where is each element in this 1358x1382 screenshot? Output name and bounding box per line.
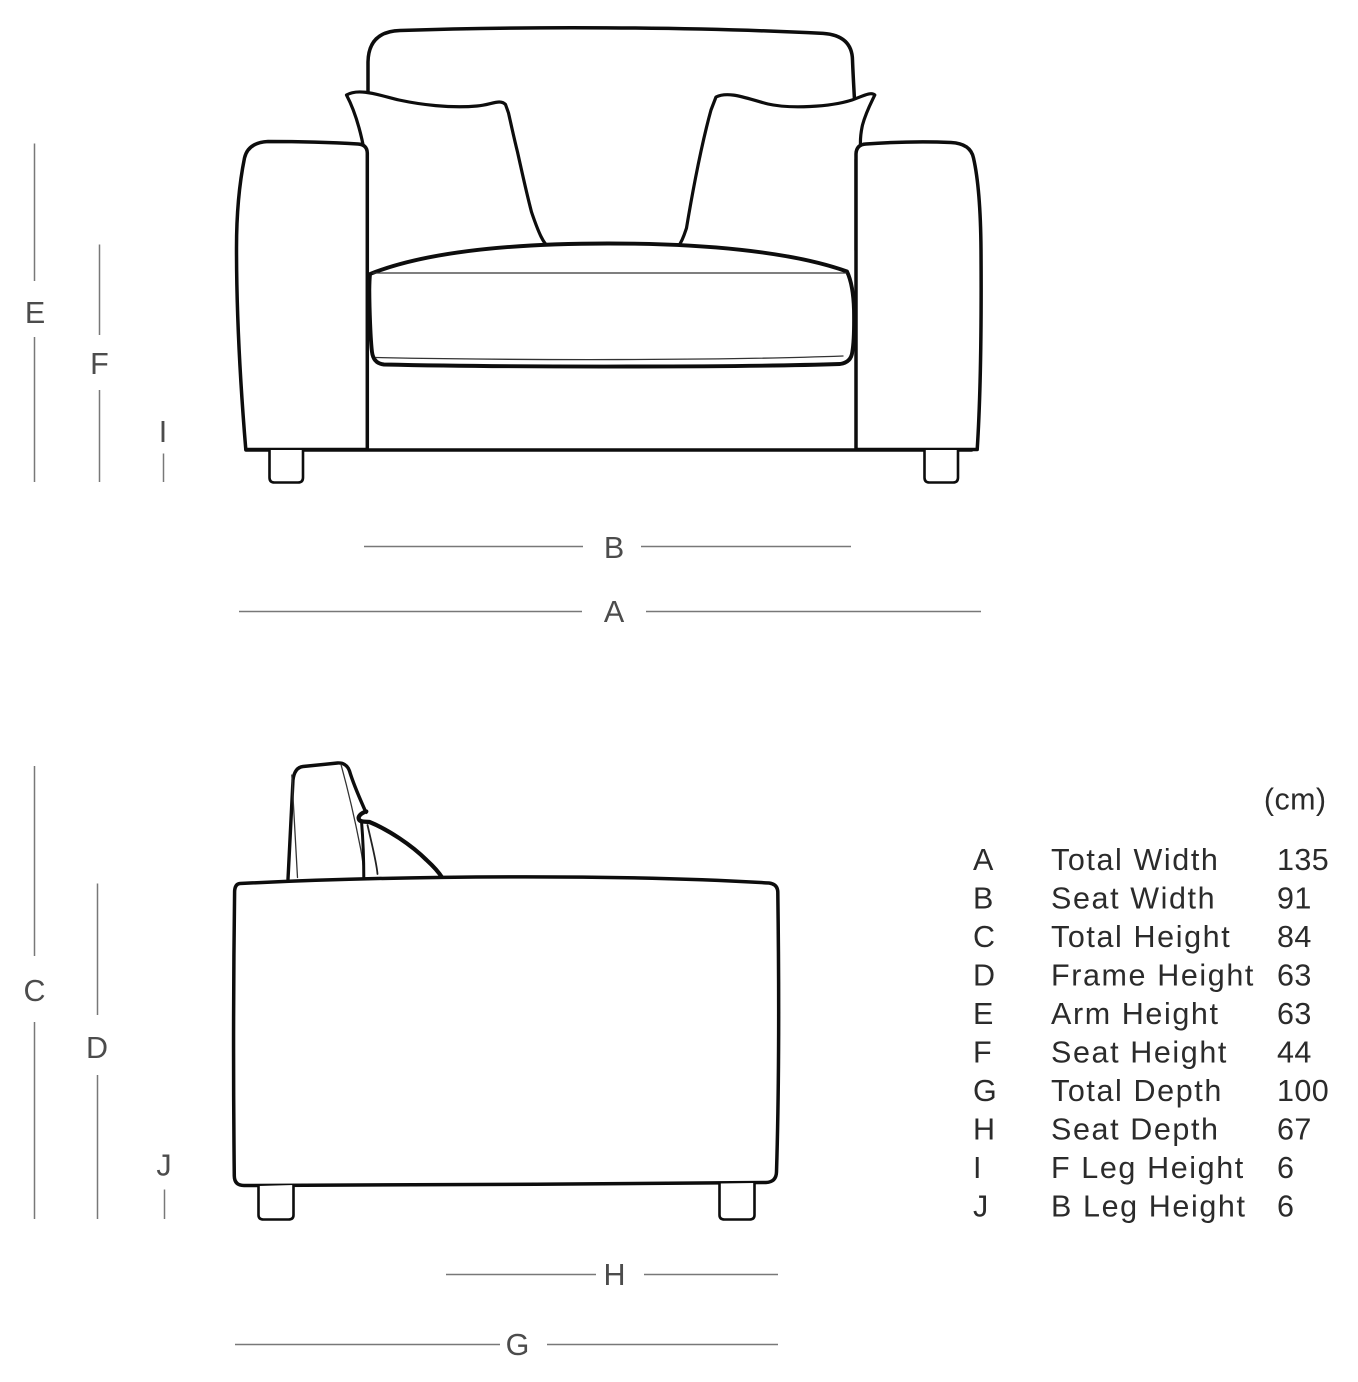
svg-text:63: 63 xyxy=(1277,997,1312,1031)
svg-text:135: 135 xyxy=(1277,843,1329,877)
svg-text:F: F xyxy=(973,1035,992,1069)
svg-text:Frame Height: Frame Height xyxy=(1051,958,1255,992)
svg-text:J: J xyxy=(973,1189,989,1223)
svg-text:D: D xyxy=(973,958,995,992)
svg-text:F Leg Height: F Leg Height xyxy=(1051,1151,1245,1185)
svg-text:6: 6 xyxy=(1277,1189,1294,1223)
svg-text:G: G xyxy=(973,1074,997,1108)
svg-text:J: J xyxy=(156,1148,171,1182)
svg-text:Seat Height: Seat Height xyxy=(1051,1035,1228,1069)
svg-text:B: B xyxy=(973,881,994,915)
svg-text:H: H xyxy=(973,1112,995,1146)
svg-text:C: C xyxy=(23,974,45,1008)
svg-text:B Leg Height: B Leg Height xyxy=(1051,1189,1247,1223)
svg-text:Seat Width: Seat Width xyxy=(1051,881,1216,915)
svg-text:84: 84 xyxy=(1277,920,1312,954)
svg-text:44: 44 xyxy=(1277,1035,1312,1069)
svg-text:G: G xyxy=(506,1328,530,1362)
svg-text:67: 67 xyxy=(1277,1112,1312,1146)
svg-text:E: E xyxy=(973,997,994,1031)
svg-text:Total Height: Total Height xyxy=(1051,920,1231,954)
svg-text:C: C xyxy=(973,920,995,954)
svg-text:Arm Height: Arm Height xyxy=(1051,997,1220,1031)
svg-text:B: B xyxy=(604,531,624,565)
svg-text:A: A xyxy=(604,595,625,629)
svg-text:Seat Depth: Seat Depth xyxy=(1051,1112,1220,1146)
svg-text:H: H xyxy=(603,1258,625,1292)
svg-text:I: I xyxy=(159,415,167,449)
svg-text:(cm): (cm) xyxy=(1264,783,1327,817)
svg-text:100: 100 xyxy=(1277,1074,1329,1108)
svg-text:I: I xyxy=(973,1151,982,1185)
svg-text:91: 91 xyxy=(1277,881,1312,915)
svg-text:63: 63 xyxy=(1277,958,1312,992)
svg-text:F: F xyxy=(90,347,109,381)
svg-text:A: A xyxy=(973,843,994,877)
svg-text:6: 6 xyxy=(1277,1151,1294,1185)
svg-text:Total Width: Total Width xyxy=(1051,843,1219,877)
svg-text:E: E xyxy=(25,296,45,330)
svg-text:D: D xyxy=(86,1031,108,1065)
svg-text:Total Depth: Total Depth xyxy=(1051,1074,1223,1108)
